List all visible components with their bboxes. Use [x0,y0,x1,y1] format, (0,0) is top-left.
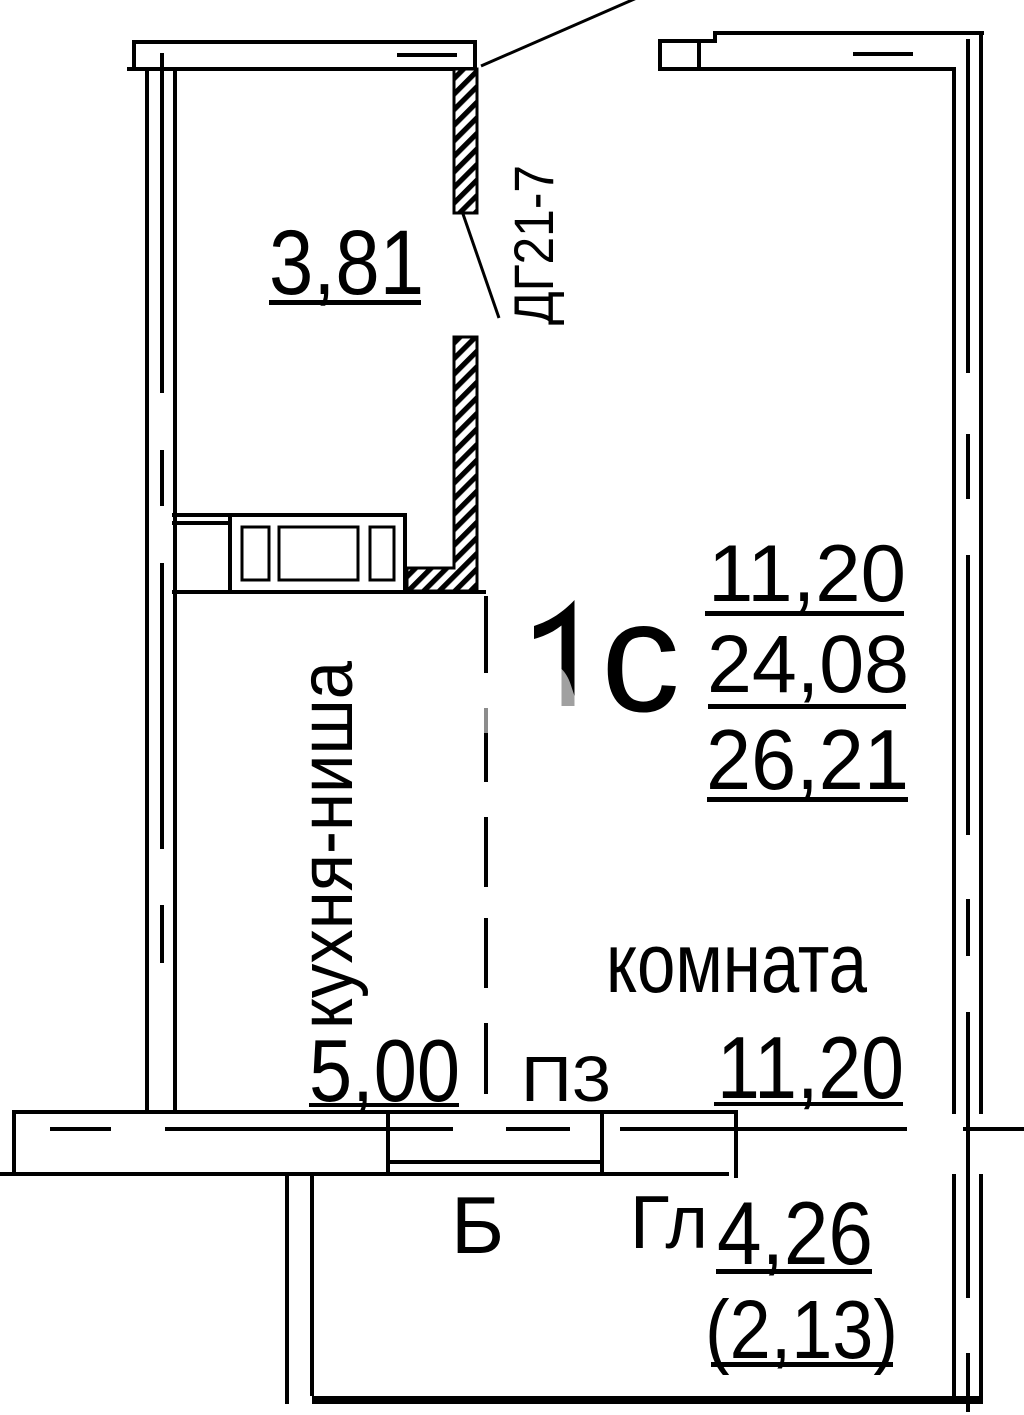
svg-text:с: с [601,569,680,745]
svg-text:Гл: Гл [630,1180,708,1264]
svg-text:кухня-ниша: кухня-ниша [284,660,369,1029]
svg-text:комната: комната [606,916,867,1010]
svg-text:11,20: 11,20 [708,529,906,619]
svg-text:П3: П3 [521,1043,611,1115]
svg-text:3,81: 3,81 [269,212,424,314]
svg-text:4,26: 4,26 [717,1183,873,1283]
svg-text:Б: Б [451,1181,504,1271]
svg-text:26,21: 26,21 [706,713,909,808]
svg-text:ДГ21-7: ДГ21-7 [502,165,565,325]
svg-text:24,08: 24,08 [707,619,909,710]
